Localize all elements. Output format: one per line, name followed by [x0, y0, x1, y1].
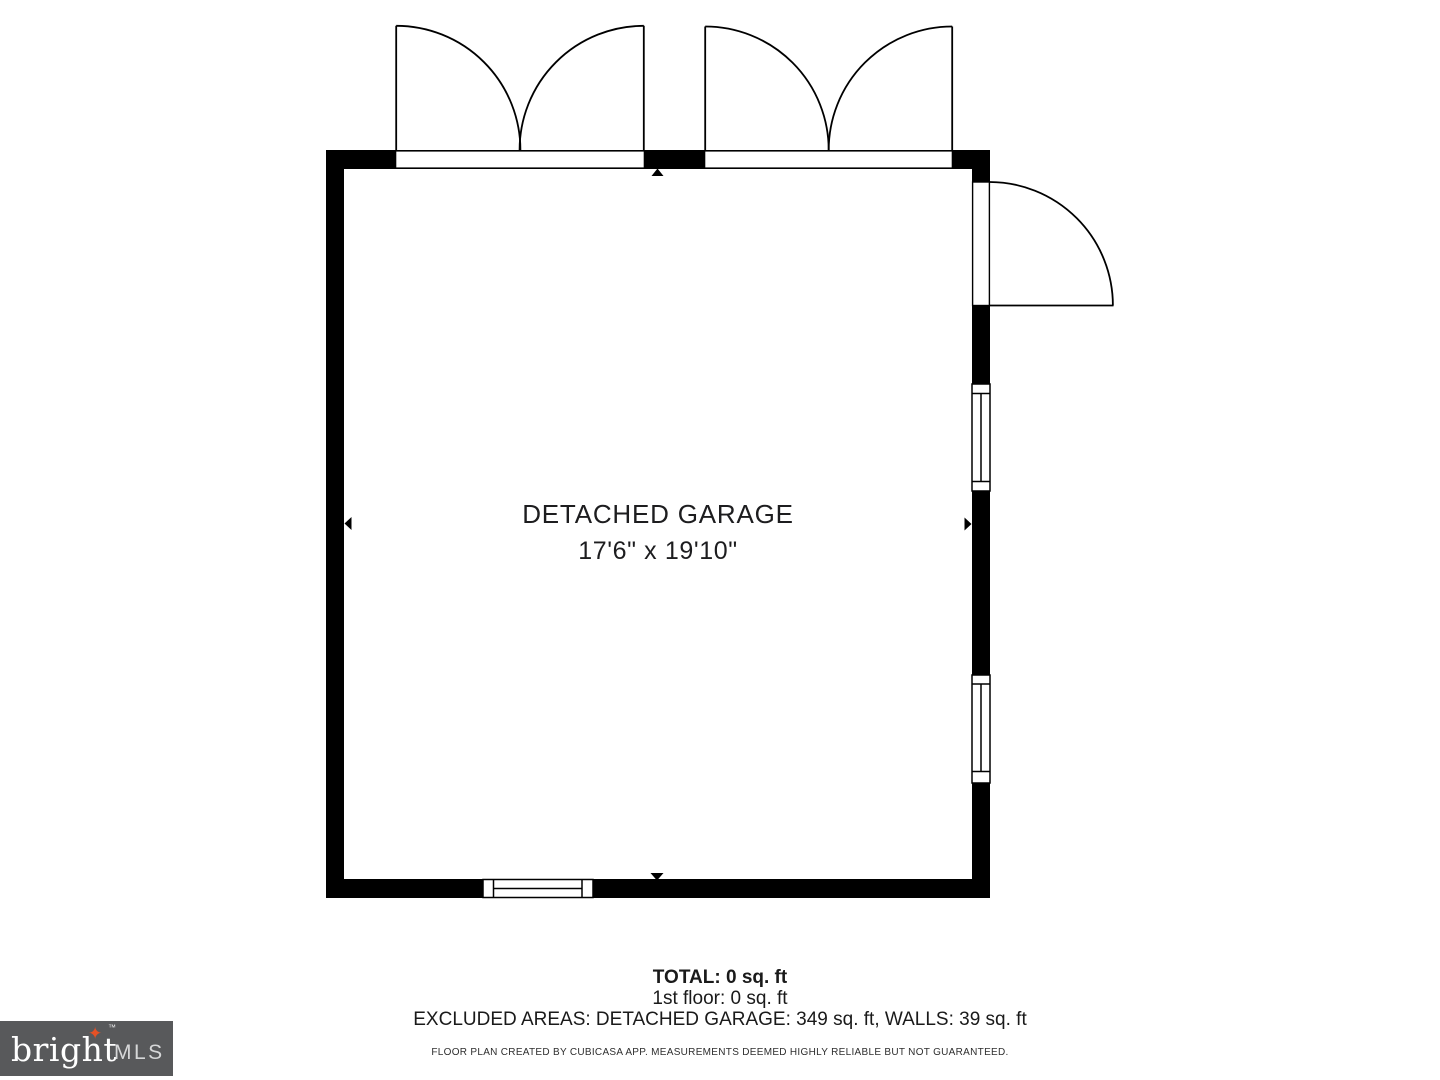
wall-marker-up-icon: [652, 169, 664, 177]
room-name: DETACHED GARAGE: [326, 496, 990, 533]
disclaimer-text: FLOOR PLAN CREATED BY CUBICASA APP. MEAS…: [0, 1047, 1440, 1059]
first-floor-area-text: 1st floor: 0 sq. ft: [0, 988, 1440, 1009]
garage-door-2-left-arc: [705, 27, 829, 151]
garage-door-2-sill: [705, 151, 953, 168]
logo-suffix-text: MLS: [114, 1041, 165, 1065]
logo-star-icon: ✦: [88, 1024, 102, 1044]
entry-door-opening: [973, 182, 990, 306]
window-right-1: [972, 384, 990, 491]
wall-bottom: [326, 879, 990, 898]
garage-door-2: [705, 27, 952, 151]
excluded-areas-text: EXCLUDED AREAS: DETACHED GARAGE: 349 sq.…: [0, 1009, 1440, 1030]
entry-door-arc: [989, 182, 1113, 306]
garage-door-1-right-arc: [520, 26, 644, 150]
garage-door-1-sill: [396, 151, 645, 168]
garage-door-2-right-arc: [829, 27, 953, 151]
floorplan-canvas: DETACHED GARAGE 17'6" x 19'10" TOTAL: 0 …: [0, 0, 1440, 1080]
garage-door-1: [396, 26, 644, 150]
bright-mls-logo: bright ✦ ™ MLS: [0, 1021, 173, 1076]
logo-trademark-text: ™: [108, 1023, 116, 1032]
garage-door-1-left-arc: [396, 26, 520, 150]
area-summary: TOTAL: 0 sq. ft 1st floor: 0 sq. ft EXCL…: [0, 967, 1440, 1059]
window-bottom: [483, 880, 593, 898]
total-area-text: TOTAL: 0 sq. ft: [0, 967, 1440, 988]
room-label: DETACHED GARAGE 17'6" x 19'10": [326, 496, 990, 570]
window-right-2: [972, 675, 990, 783]
entry-door: [973, 182, 1114, 306]
room-dimensions: 17'6" x 19'10": [326, 533, 990, 570]
